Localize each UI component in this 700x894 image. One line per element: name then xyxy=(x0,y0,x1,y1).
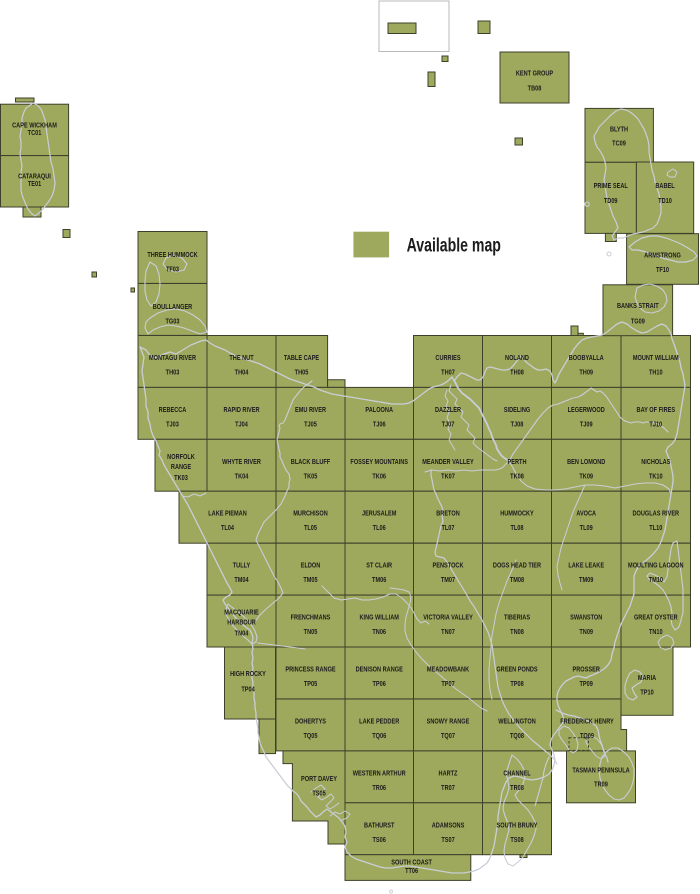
svg-text:RANGE: RANGE xyxy=(171,463,191,471)
svg-text:FOSSEY MOUNTAINS: FOSSEY MOUNTAINS xyxy=(350,458,408,466)
svg-text:TL05: TL05 xyxy=(304,525,317,533)
svg-text:HIGH ROCKY: HIGH ROCKY xyxy=(230,671,266,679)
svg-text:PENSTOCK: PENSTOCK xyxy=(433,562,464,570)
svg-text:BOOBYALLA: BOOBYALLA xyxy=(569,354,604,362)
svg-text:TD09: TD09 xyxy=(604,197,618,205)
svg-text:TQ09: TQ09 xyxy=(580,733,594,741)
svg-text:MONTAGU RIVER: MONTAGU RIVER xyxy=(149,354,196,362)
svg-text:ARMSTRONG: ARMSTRONG xyxy=(644,252,681,260)
svg-text:TQ06: TQ06 xyxy=(372,732,386,740)
svg-text:TN09: TN09 xyxy=(579,629,593,637)
svg-text:TN08: TN08 xyxy=(510,629,524,637)
svg-text:TJ09: TJ09 xyxy=(580,421,593,429)
svg-text:DENISON RANGE: DENISON RANGE xyxy=(356,666,403,674)
svg-text:TH08: TH08 xyxy=(510,369,524,377)
svg-text:TG03: TG03 xyxy=(166,318,180,326)
svg-text:TP10: TP10 xyxy=(640,689,654,697)
svg-text:MURCHISON: MURCHISON xyxy=(293,510,328,518)
svg-text:BABEL: BABEL xyxy=(655,183,674,191)
svg-text:TK09: TK09 xyxy=(579,473,593,481)
svg-text:TC09: TC09 xyxy=(612,140,626,148)
svg-text:TM07: TM07 xyxy=(441,577,456,585)
svg-text:TN04: TN04 xyxy=(235,630,249,638)
svg-text:ADAMSONS: ADAMSONS xyxy=(432,822,465,830)
svg-text:KING WILLIAM: KING WILLIAM xyxy=(359,614,398,622)
svg-text:LAKE PIEMAN: LAKE PIEMAN xyxy=(208,510,247,518)
svg-text:TK03: TK03 xyxy=(174,474,188,482)
svg-text:MOUNT WILLIAM: MOUNT WILLIAM xyxy=(633,354,679,362)
svg-text:WESTERN ARTHUR: WESTERN ARTHUR xyxy=(353,770,406,778)
svg-text:BOULLANGER: BOULLANGER xyxy=(153,303,193,311)
svg-text:BRETON: BRETON xyxy=(436,510,460,518)
svg-text:LAKE LEAKE: LAKE LEAKE xyxy=(568,562,604,570)
svg-text:TJ10: TJ10 xyxy=(649,421,662,429)
svg-text:TL06: TL06 xyxy=(373,525,386,533)
svg-text:TJ04: TJ04 xyxy=(235,421,248,429)
svg-text:KENT GROUP: KENT GROUP xyxy=(516,70,553,78)
svg-text:FRENCHMANS: FRENCHMANS xyxy=(291,614,331,622)
svg-text:TR08: TR08 xyxy=(510,784,524,792)
svg-text:PORT DAVEY: PORT DAVEY xyxy=(301,775,338,783)
svg-text:TE01: TE01 xyxy=(28,180,42,188)
svg-text:TP04: TP04 xyxy=(241,686,255,694)
svg-text:ELDON: ELDON xyxy=(301,562,321,570)
svg-text:TM05: TM05 xyxy=(303,577,318,585)
svg-text:TP09: TP09 xyxy=(580,680,594,688)
svg-text:TP06: TP06 xyxy=(373,680,387,688)
svg-text:TN05: TN05 xyxy=(304,629,318,637)
svg-text:BATHURST: BATHURST xyxy=(364,822,394,830)
svg-text:BEN LOMOND: BEN LOMOND xyxy=(567,458,606,466)
svg-text:TP05: TP05 xyxy=(304,680,318,688)
svg-text:TL10: TL10 xyxy=(649,525,662,533)
svg-text:TS07: TS07 xyxy=(441,836,455,844)
svg-text:TL08: TL08 xyxy=(510,525,523,533)
svg-text:TIBERIAS: TIBERIAS xyxy=(504,614,530,622)
svg-text:TF03: TF03 xyxy=(166,266,179,274)
svg-text:SNOWY RANGE: SNOWY RANGE xyxy=(427,718,470,726)
svg-text:TM08: TM08 xyxy=(510,577,525,585)
svg-text:MACQUARIE: MACQUARIE xyxy=(224,609,258,617)
svg-text:TJ05: TJ05 xyxy=(304,421,317,429)
svg-text:TL07: TL07 xyxy=(441,525,454,533)
svg-text:TH07: TH07 xyxy=(441,369,455,377)
svg-text:TJ07: TJ07 xyxy=(442,421,455,429)
svg-text:SOUTH COAST: SOUTH COAST xyxy=(391,859,432,867)
svg-text:DOGS HEAD TIER: DOGS HEAD TIER xyxy=(493,562,542,570)
svg-text:TQ05: TQ05 xyxy=(304,732,318,740)
svg-text:TN07: TN07 xyxy=(441,629,455,637)
svg-text:WELLINGTON: WELLINGTON xyxy=(498,718,536,726)
svg-text:TQ07: TQ07 xyxy=(441,732,455,740)
svg-text:HARBOUR: HARBOUR xyxy=(227,619,256,627)
svg-text:TK07: TK07 xyxy=(441,473,455,481)
svg-text:Available map: Available map xyxy=(407,234,501,256)
svg-text:TS05: TS05 xyxy=(312,790,326,798)
svg-text:TP07: TP07 xyxy=(441,680,455,688)
svg-text:NICHOLAS: NICHOLAS xyxy=(641,458,670,466)
svg-text:TH09: TH09 xyxy=(579,369,593,377)
svg-text:PERTH: PERTH xyxy=(508,458,527,466)
svg-text:LAKE PEDDER: LAKE PEDDER xyxy=(359,718,399,726)
svg-text:NOLAND: NOLAND xyxy=(505,354,529,362)
svg-text:TP08: TP08 xyxy=(510,680,524,688)
svg-text:GREEN PONDS: GREEN PONDS xyxy=(496,666,537,674)
svg-text:TJ08: TJ08 xyxy=(511,421,524,429)
svg-text:CURRIES: CURRIES xyxy=(435,354,460,362)
svg-text:JERUSALEM: JERUSALEM xyxy=(362,510,396,518)
svg-text:MOULTING LAGOON: MOULTING LAGOON xyxy=(628,562,684,570)
svg-text:TC01: TC01 xyxy=(28,130,42,138)
svg-text:PALOONA: PALOONA xyxy=(365,406,393,414)
svg-text:DOHERTYS: DOHERTYS xyxy=(295,718,326,726)
svg-text:PRINCESS RANGE: PRINCESS RANGE xyxy=(285,666,335,674)
svg-text:TK04: TK04 xyxy=(235,473,249,481)
svg-text:CAPE WICKHAM: CAPE WICKHAM xyxy=(12,122,57,130)
svg-text:ST CLAIR: ST CLAIR xyxy=(366,562,392,570)
svg-text:BAY OF FIRES: BAY OF FIRES xyxy=(637,406,676,414)
svg-text:PROSSER: PROSSER xyxy=(573,666,601,674)
svg-text:FREDERICK HENRY: FREDERICK HENRY xyxy=(560,718,614,726)
svg-text:PRIME SEAL: PRIME SEAL xyxy=(594,183,628,191)
svg-text:TL04: TL04 xyxy=(221,525,234,533)
svg-text:MARIA: MARIA xyxy=(638,675,657,683)
svg-text:RAPID RIVER: RAPID RIVER xyxy=(223,406,259,414)
svg-text:REBECCA: REBECCA xyxy=(159,406,187,414)
svg-text:TN06: TN06 xyxy=(372,629,386,637)
svg-text:BLYTH: BLYTH xyxy=(610,126,629,134)
svg-text:TR09: TR09 xyxy=(594,781,608,789)
svg-text:TABLE CAPE: TABLE CAPE xyxy=(284,354,319,362)
svg-text:HUMMOCKY: HUMMOCKY xyxy=(500,510,534,518)
svg-text:TF10: TF10 xyxy=(656,267,669,275)
svg-text:TG09: TG09 xyxy=(631,318,645,326)
svg-text:TK05: TK05 xyxy=(304,473,318,481)
svg-text:AVOCA: AVOCA xyxy=(576,510,596,518)
svg-text:SWANSTON: SWANSTON xyxy=(570,614,603,622)
svg-text:TK08: TK08 xyxy=(510,473,524,481)
svg-text:TM04: TM04 xyxy=(234,577,249,585)
svg-text:BANKS STRAIT: BANKS STRAIT xyxy=(617,303,659,311)
svg-text:TB08: TB08 xyxy=(528,85,542,93)
svg-text:NORFOLK: NORFOLK xyxy=(167,453,195,461)
svg-text:TS06: TS06 xyxy=(373,836,387,844)
svg-text:THE NUT: THE NUT xyxy=(229,354,253,362)
svg-text:DAZZLER: DAZZLER xyxy=(435,406,461,414)
svg-text:TD10: TD10 xyxy=(658,197,672,205)
svg-text:TH10: TH10 xyxy=(649,369,663,377)
svg-text:TULLY: TULLY xyxy=(233,562,251,570)
svg-text:BLACK BLUFF: BLACK BLUFF xyxy=(291,458,331,466)
svg-text:WHYTE RIVER: WHYTE RIVER xyxy=(222,458,261,466)
svg-text:TASMAN PENINSULA: TASMAN PENINSULA xyxy=(572,767,630,775)
svg-text:TM09: TM09 xyxy=(579,577,594,585)
svg-text:TQ08: TQ08 xyxy=(510,732,524,740)
svg-text:DOUGLAS RIVER: DOUGLAS RIVER xyxy=(632,510,679,518)
svg-text:TN10: TN10 xyxy=(649,629,663,637)
svg-text:TK10: TK10 xyxy=(649,473,663,481)
svg-text:GREAT OYSTER: GREAT OYSTER xyxy=(634,614,678,622)
svg-text:TS08: TS08 xyxy=(510,836,524,844)
svg-text:SIDELING: SIDELING xyxy=(504,406,530,414)
svg-text:CHANNEL: CHANNEL xyxy=(503,770,530,778)
svg-text:TT06: TT06 xyxy=(405,868,418,876)
svg-text:THREE HUMMOCK: THREE HUMMOCK xyxy=(147,251,198,259)
svg-text:EMU RIVER: EMU RIVER xyxy=(295,406,326,414)
svg-text:TM10: TM10 xyxy=(649,577,664,585)
svg-text:TH05: TH05 xyxy=(295,369,309,377)
svg-text:TJ03: TJ03 xyxy=(166,421,179,429)
svg-text:TL09: TL09 xyxy=(580,525,593,533)
svg-text:TR06: TR06 xyxy=(372,784,386,792)
svg-text:MEANDER VALLEY: MEANDER VALLEY xyxy=(422,458,474,466)
svg-text:TK06: TK06 xyxy=(372,473,386,481)
svg-text:MEADOWBANK: MEADOWBANK xyxy=(427,666,470,674)
svg-text:TR07: TR07 xyxy=(441,784,455,792)
svg-text:LEGERWOOD: LEGERWOOD xyxy=(568,406,606,414)
svg-text:TM06: TM06 xyxy=(372,577,387,585)
svg-text:TH04: TH04 xyxy=(235,369,249,377)
svg-text:TJ06: TJ06 xyxy=(373,421,386,429)
svg-text:HARTZ: HARTZ xyxy=(439,770,458,778)
svg-text:SOUTH BRUNY: SOUTH BRUNY xyxy=(496,822,538,830)
svg-text:TH03: TH03 xyxy=(166,369,180,377)
svg-text:VICTORIA VALLEY: VICTORIA VALLEY xyxy=(423,614,473,622)
